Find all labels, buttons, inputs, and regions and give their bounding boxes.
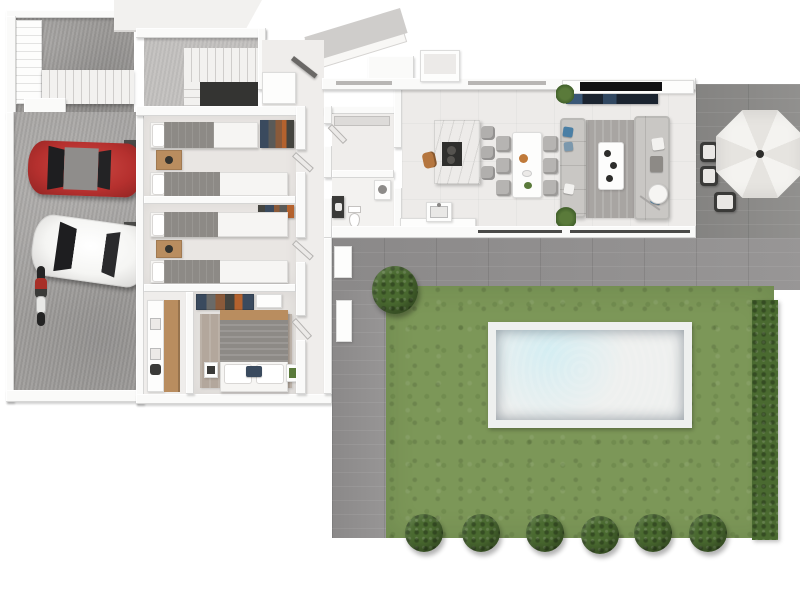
border-bush-2: [462, 514, 500, 552]
bar-stool-2: [481, 146, 495, 160]
utility-west-wall-2: [324, 146, 332, 178]
border-bush-1: [405, 514, 443, 552]
master-accent-pillow: [246, 366, 262, 377]
bedroom1-north-wall: [136, 106, 306, 116]
master-bed-headframe: [220, 310, 288, 320]
bedrooms-east-wall-3: [296, 262, 306, 316]
dining-chair-l1: [496, 136, 511, 152]
sofa-left-pillow-blue: [562, 126, 573, 137]
driveway-left-wall: [6, 16, 16, 118]
toilet-tank: [348, 206, 361, 213]
stairwell-void: [198, 80, 258, 108]
driveway-storage-cabinet: [16, 20, 42, 104]
red-car-roof: [63, 147, 98, 190]
bedroom2-bed-a: [150, 212, 288, 237]
kitchen-island: [434, 120, 480, 184]
floor-lamp-shade: [648, 184, 668, 204]
bedrooms-west-wall: [136, 106, 144, 404]
north-window-2: [468, 81, 546, 85]
outdoor-chair-1: [700, 142, 718, 162]
bedroom1-bed-a: [150, 122, 258, 148]
kitchen-faucet: [437, 203, 441, 207]
washing-machine-door: [378, 185, 387, 194]
sliding-glass-door-2: [570, 230, 690, 233]
bedroom2-bed-b: [150, 260, 288, 283]
bedroom1-bed-b: [150, 172, 288, 196]
bedroom2-bed-b-duvet: [164, 260, 220, 283]
ensuite-wood-cabinet: [164, 300, 180, 392]
ensuite-vanity: [147, 300, 164, 392]
coffee-table: [598, 142, 624, 190]
window-bay-glass: [424, 54, 456, 74]
motorcycle-rear-wheel: [37, 312, 45, 326]
bedrooms-east-wall-2: [296, 172, 306, 238]
dining-chair-r1: [543, 136, 558, 152]
sliding-glass-door-1: [478, 230, 562, 233]
staircase-north-wall: [136, 28, 266, 38]
coffee-table-decor-3: [606, 175, 613, 182]
bedroom1-lamp: [165, 156, 173, 164]
motorcycle: [32, 266, 50, 326]
border-bush-4: [581, 516, 619, 554]
bedroom1-bed-b-duvet: [164, 172, 220, 196]
dining-decor-bowl: [519, 154, 528, 163]
bedroom1-nightstand: [156, 150, 182, 170]
red-car-rear-window: [97, 149, 112, 189]
sofa-right-throw: [650, 156, 663, 172]
ensuite-master-divider-wall: [186, 292, 194, 394]
ensuite-toilet: [150, 364, 161, 375]
sofa-left: [560, 118, 586, 218]
tv-screen: [580, 82, 662, 91]
ensuite-sink-1: [150, 318, 161, 330]
tv-plant: [556, 84, 574, 104]
kitchen-sink-basin: [430, 206, 448, 218]
bedroom1-wardrobe: [260, 120, 294, 148]
master-nightstand-left-decor: [207, 366, 215, 374]
hall-closet-nw: [262, 72, 296, 104]
bedroom2-master-divider-wall: [144, 284, 296, 292]
staircase-upper-flight: [184, 48, 258, 82]
media-shelf: [566, 94, 658, 104]
master-bed: [220, 310, 288, 392]
sofa-right-pillow-white: [651, 137, 665, 151]
dining-chair-l3: [496, 180, 511, 196]
bathroom-vanity-sink: [335, 203, 342, 211]
cooktop: [442, 142, 462, 166]
utility-west-wall-3: [324, 198, 332, 238]
motorcycle-body: [35, 278, 47, 298]
bedroom1-2-divider-wall: [144, 196, 296, 204]
garden-hedge: [752, 300, 778, 540]
bedrooms-east-wall-4: [296, 340, 306, 394]
bedroom2-nightstand: [156, 240, 182, 258]
closet-shelves: [334, 116, 390, 126]
patio-storage-unit-2: [336, 300, 352, 342]
utility-north-wall: [324, 106, 396, 114]
kitchen-sink-unit: [426, 202, 452, 222]
north-window-1: [336, 81, 392, 85]
master-nightstand-left: [204, 362, 218, 378]
bedroom2-bed-a-duvet: [164, 212, 218, 237]
bedrooms-east-wall-1: [296, 106, 306, 150]
red-car: [27, 140, 143, 198]
white-car-rear-window: [101, 230, 123, 278]
utility-east-wall: [394, 86, 402, 148]
coffee-table-decor-1: [604, 150, 611, 157]
garden-corner-bush: [372, 266, 418, 314]
ensuite-sink-2: [150, 348, 161, 360]
master-dresser: [256, 294, 282, 308]
outdoor-chair-2: [700, 166, 718, 186]
umbrella-pole: [756, 150, 764, 158]
bar-stool-1: [481, 126, 495, 140]
border-bush-5: [634, 514, 672, 552]
bar-stool-3: [481, 166, 495, 180]
sofa-left-pillow-lightblue: [564, 142, 574, 152]
staircase-lower-flight: [184, 82, 200, 108]
white-car-windshield: [51, 221, 78, 273]
burner-2: [447, 156, 455, 164]
outdoor-chair-3: [714, 192, 736, 212]
red-car-windshield: [45, 146, 65, 191]
pool-water: [496, 330, 684, 420]
utility-west-wall-1: [324, 106, 332, 124]
dining-decor-plant: [524, 182, 532, 189]
sofa-left-pillow-white: [563, 183, 575, 195]
house-south-wall: [136, 394, 332, 404]
master-open-wardrobe: [196, 294, 254, 310]
corridor-east-exterior-wall: [324, 238, 332, 394]
bathroom-vanity: [332, 196, 344, 218]
dining-chair-r3: [543, 180, 558, 196]
bedroom1-bed-a-duvet: [164, 122, 214, 148]
garage-west-wall: [6, 112, 14, 402]
washing-machine: [374, 180, 391, 200]
master-bed-duvet: [220, 320, 288, 362]
garage-south-wall: [6, 390, 138, 402]
border-bush-3: [526, 514, 564, 552]
dining-chair-r2: [543, 158, 558, 174]
dining-chair-l2: [496, 158, 511, 174]
dining-decor-plate: [522, 170, 532, 177]
border-bush-6: [689, 514, 727, 552]
dining-table: [512, 132, 542, 198]
burner-1: [447, 146, 456, 155]
window-bay: [420, 50, 460, 82]
patio-storage-unit-1: [334, 246, 352, 278]
bedroom2-lamp: [165, 245, 173, 253]
coffee-table-decor-2: [610, 162, 617, 169]
closet-bath-divider-wall: [332, 170, 394, 178]
floor-plan-scene: [0, 0, 800, 600]
